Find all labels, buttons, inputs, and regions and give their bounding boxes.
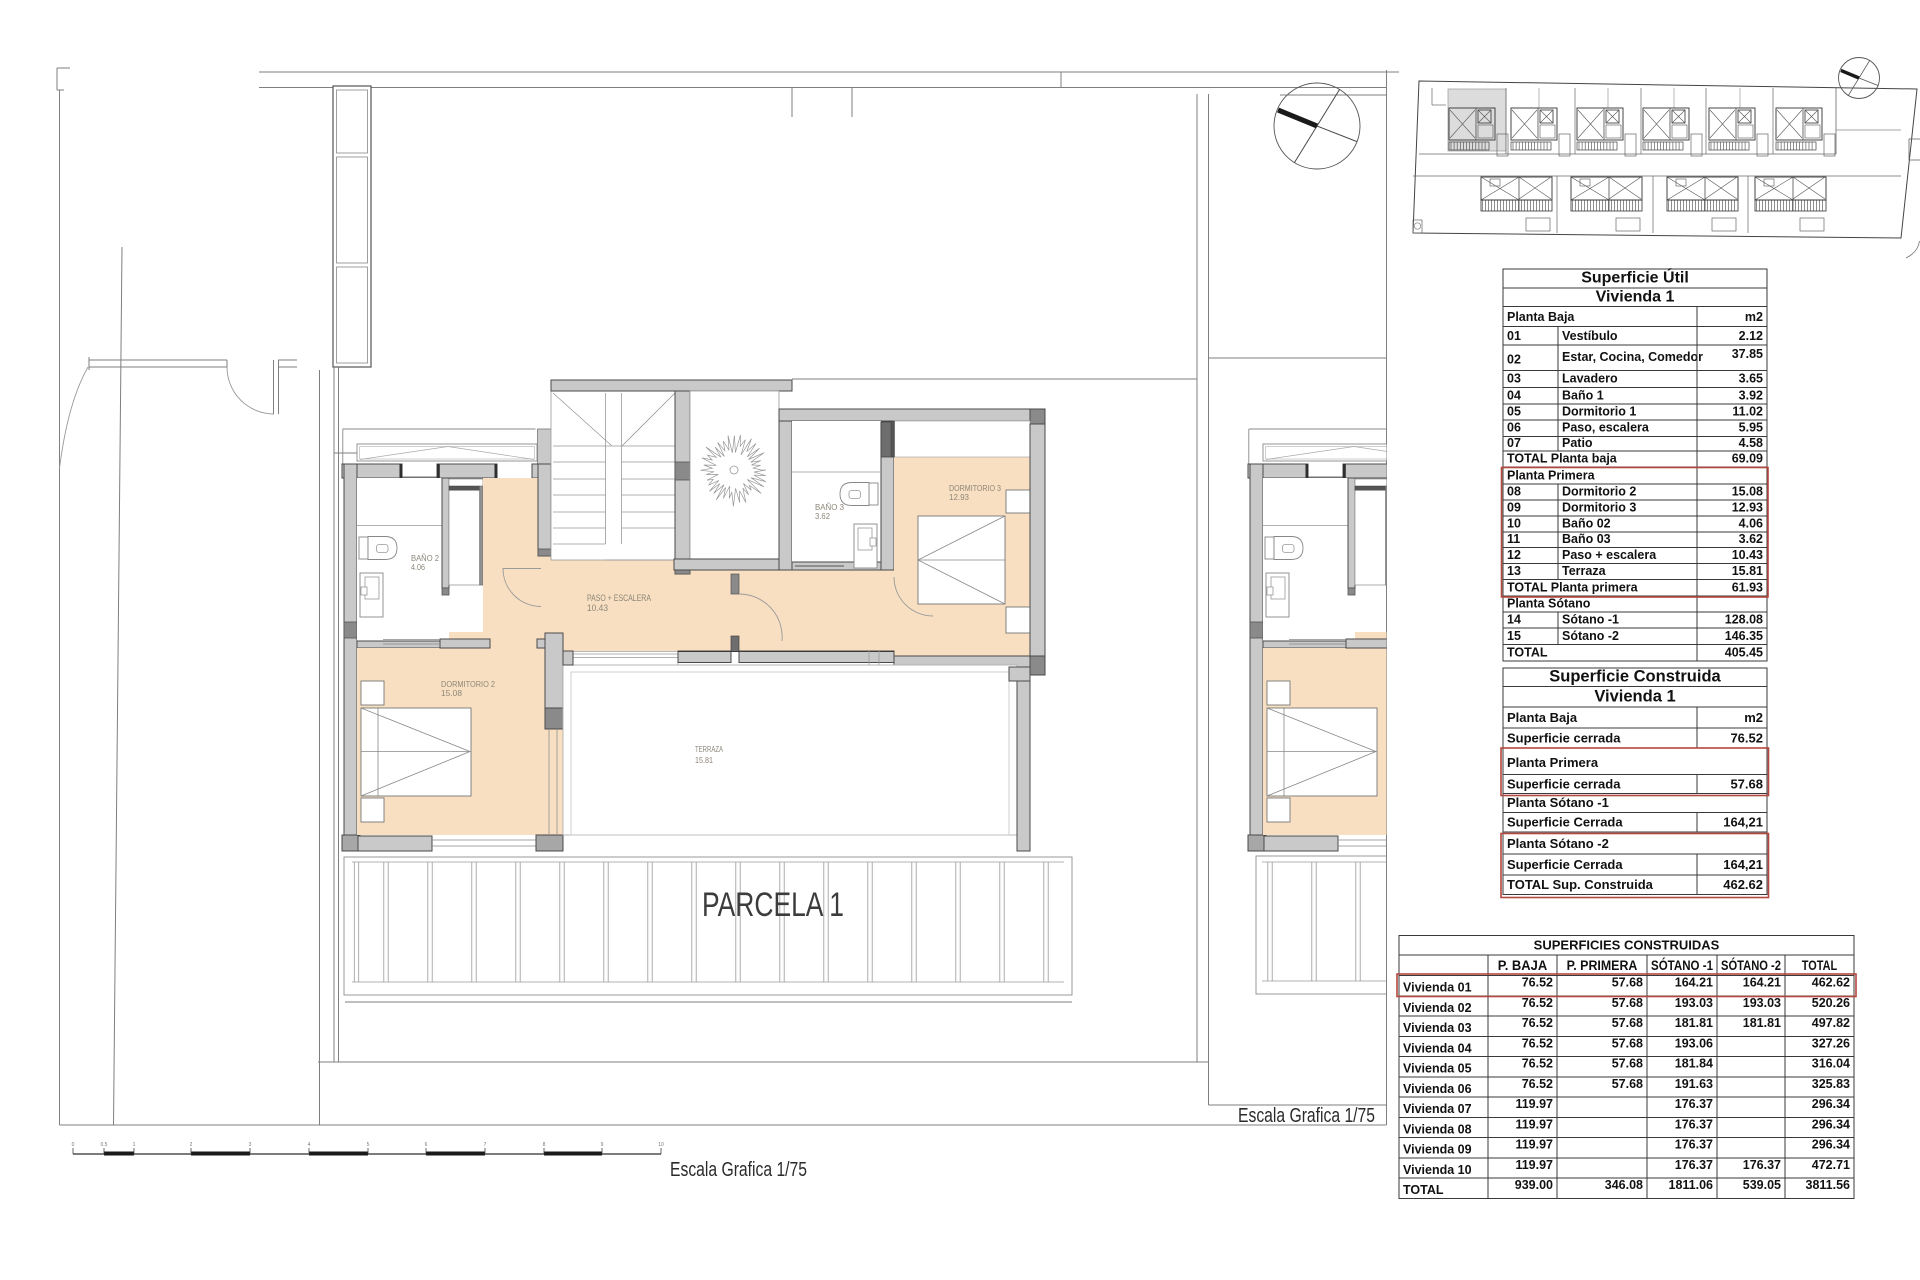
- svg-text:4.06: 4.06: [1739, 516, 1763, 530]
- svg-text:11: 11: [1507, 532, 1520, 546]
- svg-text:Vivienda 1: Vivienda 1: [1594, 687, 1675, 705]
- svg-text:03: 03: [1507, 372, 1521, 386]
- svg-text:08: 08: [1507, 485, 1521, 499]
- svg-text:346.08: 346.08: [1605, 1178, 1643, 1192]
- svg-text:Sótano -1: Sótano -1: [1562, 613, 1619, 627]
- svg-text:57.68: 57.68: [1612, 1016, 1643, 1030]
- svg-text:472.71: 472.71: [1812, 1158, 1850, 1172]
- svg-text:3: 3: [249, 1142, 252, 1148]
- svg-text:2.12: 2.12: [1739, 329, 1763, 343]
- svg-text:296.34: 296.34: [1812, 1138, 1850, 1152]
- svg-text:12.93: 12.93: [1732, 500, 1763, 514]
- svg-text:1: 1: [133, 1142, 136, 1148]
- svg-text:Vivienda 02: Vivienda 02: [1403, 1001, 1472, 1015]
- svg-text:296.34: 296.34: [1812, 1117, 1850, 1131]
- svg-text:10: 10: [658, 1142, 664, 1148]
- svg-text:SÓTANO -1: SÓTANO -1: [1651, 958, 1713, 973]
- svg-text:Superficie Construida: Superficie Construida: [1549, 668, 1721, 686]
- svg-text:69.09: 69.09: [1732, 452, 1763, 466]
- svg-text:119.97: 119.97: [1515, 1097, 1553, 1111]
- svg-text:Vivienda 10: Vivienda 10: [1403, 1163, 1472, 1177]
- svg-text:Terraza: Terraza: [1562, 564, 1607, 578]
- svg-text:Superficie cerrada: Superficie cerrada: [1507, 730, 1621, 745]
- svg-text:76.52: 76.52: [1522, 976, 1553, 990]
- svg-text:193.03: 193.03: [1675, 996, 1713, 1010]
- svg-text:Superficie Útil: Superficie Útil: [1581, 268, 1689, 287]
- svg-text:3.62: 3.62: [815, 511, 830, 521]
- svg-text:296.34: 296.34: [1812, 1097, 1850, 1111]
- svg-text:Dormitorio 3: Dormitorio 3: [1562, 500, 1636, 514]
- svg-text:76.52: 76.52: [1522, 1057, 1553, 1071]
- svg-text:0: 0: [72, 1142, 75, 1148]
- svg-text:Vivienda 05: Vivienda 05: [1403, 1062, 1472, 1076]
- svg-text:57.68: 57.68: [1730, 776, 1763, 791]
- svg-text:1811.06: 1811.06: [1669, 1178, 1714, 1192]
- svg-text:Dormitorio 2: Dormitorio 2: [1562, 485, 1636, 499]
- svg-text:146.35: 146.35: [1725, 629, 1763, 643]
- svg-text:176.37: 176.37: [1675, 1158, 1713, 1172]
- svg-text:10.43: 10.43: [1732, 548, 1763, 562]
- svg-text:Planta Sótano: Planta Sótano: [1507, 597, 1591, 611]
- svg-text:119.97: 119.97: [1515, 1158, 1553, 1172]
- svg-text:Patio: Patio: [1562, 436, 1593, 450]
- svg-text:Planta Baja: Planta Baja: [1507, 310, 1575, 324]
- svg-text:3.65: 3.65: [1739, 372, 1763, 386]
- svg-text:Vivienda 01: Vivienda 01: [1403, 981, 1472, 995]
- svg-text:TOTAL Sup. Construida: TOTAL Sup. Construida: [1507, 877, 1654, 892]
- svg-text:TOTAL Planta primera: TOTAL Planta primera: [1507, 580, 1639, 594]
- svg-text:37.85: 37.85: [1732, 347, 1763, 361]
- svg-text:P. BAJA: P. BAJA: [1498, 958, 1548, 973]
- svg-text:Planta Primera: Planta Primera: [1507, 468, 1596, 482]
- svg-text:15.08: 15.08: [441, 688, 462, 698]
- svg-text:12: 12: [1507, 548, 1521, 562]
- svg-text:13: 13: [1507, 564, 1521, 578]
- svg-text:Superficie cerrada: Superficie cerrada: [1507, 776, 1621, 791]
- svg-text:Vestíbulo: Vestíbulo: [1562, 329, 1618, 343]
- svg-text:3.92: 3.92: [1739, 388, 1763, 402]
- svg-text:57.68: 57.68: [1612, 1036, 1643, 1050]
- svg-text:Superficie Cerrada: Superficie Cerrada: [1507, 815, 1623, 830]
- svg-text:4: 4: [308, 1142, 311, 1148]
- svg-text:05: 05: [1507, 405, 1521, 419]
- svg-text:01: 01: [1507, 329, 1521, 343]
- svg-text:Planta Primera: Planta Primera: [1507, 755, 1599, 770]
- svg-text:P. PRIMERA: P. PRIMERA: [1567, 958, 1638, 973]
- svg-text:Superficie Cerrada: Superficie Cerrada: [1507, 857, 1623, 872]
- svg-text:164.21: 164.21: [1675, 976, 1713, 990]
- svg-text:Vivienda 09: Vivienda 09: [1403, 1143, 1472, 1157]
- svg-text:Planta Sótano -1: Planta Sótano -1: [1507, 795, 1609, 810]
- svg-text:m2: m2: [1745, 310, 1763, 324]
- svg-text:02: 02: [1507, 352, 1521, 366]
- svg-text:61.93: 61.93: [1732, 580, 1763, 594]
- svg-text:06: 06: [1507, 421, 1521, 435]
- svg-text:Escala Grafica 1/75: Escala Grafica 1/75: [1238, 1105, 1375, 1127]
- svg-text:Baño 02: Baño 02: [1562, 516, 1611, 530]
- svg-text:14: 14: [1507, 613, 1521, 627]
- svg-text:Vivienda 08: Vivienda 08: [1403, 1122, 1472, 1136]
- svg-text:3.62: 3.62: [1739, 532, 1763, 546]
- svg-text:181.81: 181.81: [1675, 1016, 1713, 1030]
- svg-text:497.82: 497.82: [1812, 1016, 1850, 1030]
- svg-text:PASO + ESCALERA: PASO + ESCALERA: [587, 593, 651, 603]
- svg-text:176.37: 176.37: [1675, 1097, 1713, 1111]
- svg-text:0.5: 0.5: [101, 1142, 108, 1148]
- svg-text:15.81: 15.81: [1732, 564, 1763, 578]
- svg-text:57.68: 57.68: [1612, 976, 1643, 990]
- svg-text:m2: m2: [1744, 710, 1763, 725]
- svg-text:176.37: 176.37: [1675, 1117, 1713, 1131]
- svg-text:PARCELA 1: PARCELA 1: [702, 886, 844, 924]
- svg-text:325.83: 325.83: [1812, 1077, 1850, 1091]
- svg-text:520.26: 520.26: [1812, 996, 1850, 1010]
- svg-text:Planta Sótano -2: Planta Sótano -2: [1507, 836, 1609, 851]
- svg-text:76.52: 76.52: [1522, 1036, 1553, 1050]
- svg-text:57.68: 57.68: [1612, 996, 1643, 1010]
- svg-text:5.95: 5.95: [1739, 421, 1763, 435]
- svg-text:09: 09: [1507, 500, 1521, 514]
- svg-text:11.02: 11.02: [1732, 405, 1763, 419]
- svg-text:76.52: 76.52: [1522, 1077, 1553, 1091]
- svg-text:TOTAL Planta baja: TOTAL Planta baja: [1507, 452, 1618, 466]
- svg-text:462.62: 462.62: [1723, 877, 1763, 892]
- svg-text:TOTAL: TOTAL: [1403, 1183, 1444, 1197]
- svg-text:164.21: 164.21: [1743, 976, 1781, 990]
- svg-text:316.04: 316.04: [1812, 1057, 1850, 1071]
- svg-text:9: 9: [601, 1142, 604, 1148]
- svg-text:15: 15: [1507, 629, 1521, 643]
- svg-text:193.03: 193.03: [1743, 996, 1781, 1010]
- svg-text:TOTAL: TOTAL: [1507, 645, 1548, 659]
- svg-text:164,21: 164,21: [1723, 815, 1763, 830]
- svg-text:176.37: 176.37: [1675, 1138, 1713, 1152]
- svg-text:Paso, escalera: Paso, escalera: [1562, 421, 1650, 435]
- svg-text:Baño 03: Baño 03: [1562, 532, 1611, 546]
- svg-text:76.52: 76.52: [1522, 996, 1553, 1010]
- svg-text:76.52: 76.52: [1522, 1016, 1553, 1030]
- svg-text:8: 8: [543, 1142, 546, 1148]
- svg-text:15.81: 15.81: [695, 755, 713, 765]
- svg-text:TOTAL: TOTAL: [1802, 958, 1837, 973]
- svg-text:SÓTANO -2: SÓTANO -2: [1721, 958, 1781, 973]
- svg-text:12.93: 12.93: [949, 492, 969, 502]
- svg-text:128.08: 128.08: [1725, 613, 1763, 627]
- svg-text:Vivienda 06: Vivienda 06: [1403, 1082, 1472, 1096]
- svg-text:57.68: 57.68: [1612, 1077, 1643, 1091]
- svg-text:191.63: 191.63: [1675, 1077, 1713, 1091]
- svg-text:6: 6: [425, 1142, 428, 1148]
- svg-text:7: 7: [484, 1142, 487, 1148]
- svg-text:181.81: 181.81: [1743, 1016, 1781, 1030]
- svg-text:Vivienda 04: Vivienda 04: [1403, 1041, 1472, 1055]
- svg-text:939.00: 939.00: [1515, 1178, 1553, 1192]
- svg-text:176.37: 176.37: [1743, 1158, 1781, 1172]
- svg-text:193.06: 193.06: [1675, 1036, 1713, 1050]
- svg-text:10: 10: [1507, 516, 1521, 530]
- svg-text:327.26: 327.26: [1812, 1036, 1850, 1050]
- svg-text:Vivienda 1: Vivienda 1: [1596, 288, 1675, 305]
- svg-text:181.84: 181.84: [1675, 1057, 1713, 1071]
- svg-text:Planta Baja: Planta Baja: [1507, 710, 1578, 725]
- svg-text:Vivienda 07: Vivienda 07: [1403, 1102, 1472, 1116]
- svg-text:Baño 1: Baño 1: [1562, 388, 1604, 402]
- svg-text:TERRAZA: TERRAZA: [695, 744, 723, 754]
- svg-text:4.58: 4.58: [1739, 436, 1763, 450]
- svg-text:4.06: 4.06: [411, 562, 425, 572]
- svg-text:2: 2: [190, 1142, 193, 1148]
- svg-text:539.05: 539.05: [1743, 1178, 1781, 1192]
- svg-text:07: 07: [1507, 436, 1521, 450]
- svg-text:76.52: 76.52: [1730, 730, 1763, 745]
- svg-text:SUPERFICIES CONSTRUIDAS: SUPERFICIES CONSTRUIDAS: [1534, 938, 1720, 953]
- svg-text:Lavadero: Lavadero: [1562, 372, 1618, 386]
- svg-text:119.97: 119.97: [1515, 1138, 1553, 1152]
- svg-text:405.45: 405.45: [1725, 645, 1763, 659]
- svg-text:04: 04: [1507, 388, 1521, 402]
- svg-text:5: 5: [367, 1142, 370, 1148]
- svg-text:57.68: 57.68: [1612, 1057, 1643, 1071]
- svg-text:15.08: 15.08: [1732, 485, 1763, 499]
- svg-text:Vivienda 03: Vivienda 03: [1403, 1021, 1472, 1035]
- svg-text:119.97: 119.97: [1515, 1117, 1553, 1131]
- svg-text:164,21: 164,21: [1723, 857, 1763, 872]
- svg-text:Paso + escalera: Paso + escalera: [1562, 548, 1657, 562]
- svg-text:Dormitorio 1: Dormitorio 1: [1562, 405, 1636, 419]
- svg-text:Estar, Cocina, Comedor: Estar, Cocina, Comedor: [1562, 350, 1703, 364]
- svg-text:Sótano -2: Sótano -2: [1562, 629, 1619, 643]
- svg-text:10.43: 10.43: [587, 603, 608, 613]
- svg-text:3811.56: 3811.56: [1806, 1178, 1851, 1192]
- svg-text:Escala Grafica 1/75: Escala Grafica 1/75: [670, 1159, 807, 1181]
- svg-text:462.62: 462.62: [1812, 976, 1850, 990]
